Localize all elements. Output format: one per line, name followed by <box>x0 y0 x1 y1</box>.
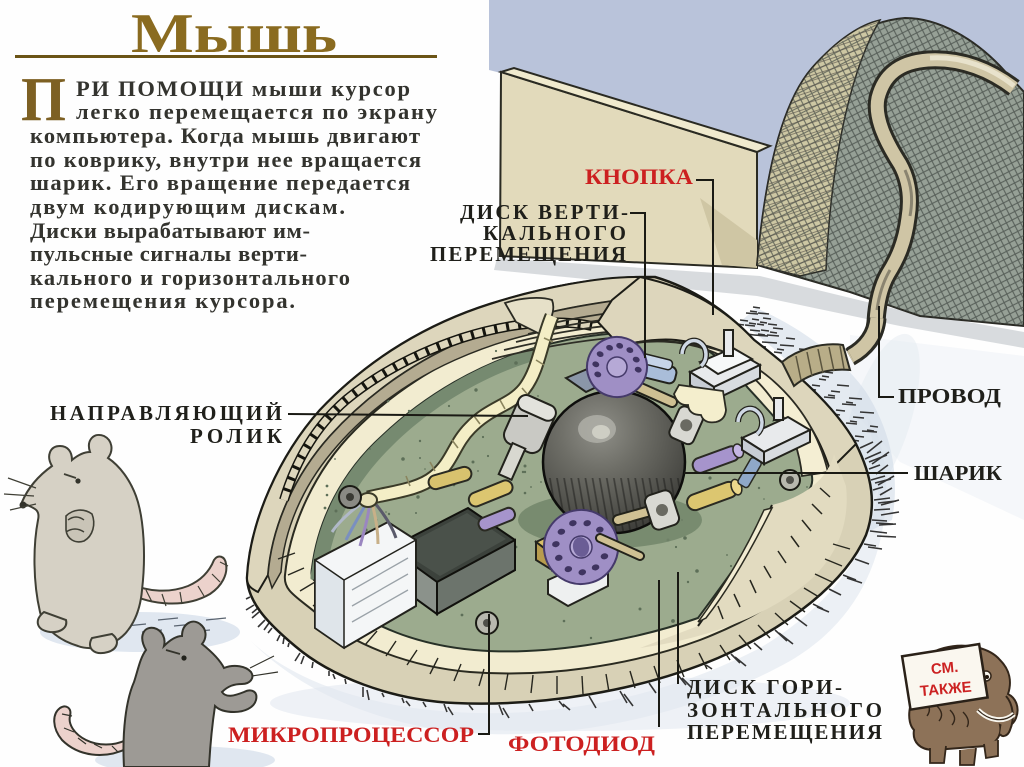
svg-text:ШАРИК: ШАРИК <box>914 461 1003 485</box>
svg-text:ПЕРЕМЕЩЕНИЯ: ПЕРЕМЕЩЕНИЯ <box>687 720 882 744</box>
svg-text:ПЕРЕМЕЩЕНИЯ: ПЕРЕМЕЩЕНИЯ <box>430 242 626 266</box>
svg-text:компьютера. Когда мышь двигают: компьютера. Когда мышь двигают <box>30 123 420 148</box>
svg-text:двум кодирующим дискам.: двум кодирующим дискам. <box>30 194 345 219</box>
svg-text:шарик. Его вращение передается: шарик. Его вращение передается <box>30 170 410 195</box>
svg-text:КНОПКА: КНОПКА <box>585 164 693 189</box>
svg-text:СМ.: СМ. <box>930 659 959 678</box>
svg-text:Диски вырабатывают им-: Диски вырабатывают им- <box>30 218 310 243</box>
svg-text:пульсные сигналы верти-: пульсные сигналы верти- <box>30 241 307 266</box>
svg-text:ФОТОДИОД: ФОТОДИОД <box>508 731 655 756</box>
svg-text:кального и горизонтального: кального и горизонтального <box>30 265 350 290</box>
svg-text:легко перемещается по экрану: легко перемещается по экрану <box>76 99 438 124</box>
svg-text:МИКРОПРОЦЕССОР: МИКРОПРОЦЕССОР <box>228 722 474 747</box>
svg-text:ЗОНТАЛЬНОГО: ЗОНТАЛЬНОГО <box>687 698 882 722</box>
svg-text:ПРОВОД: ПРОВОД <box>898 384 1002 408</box>
